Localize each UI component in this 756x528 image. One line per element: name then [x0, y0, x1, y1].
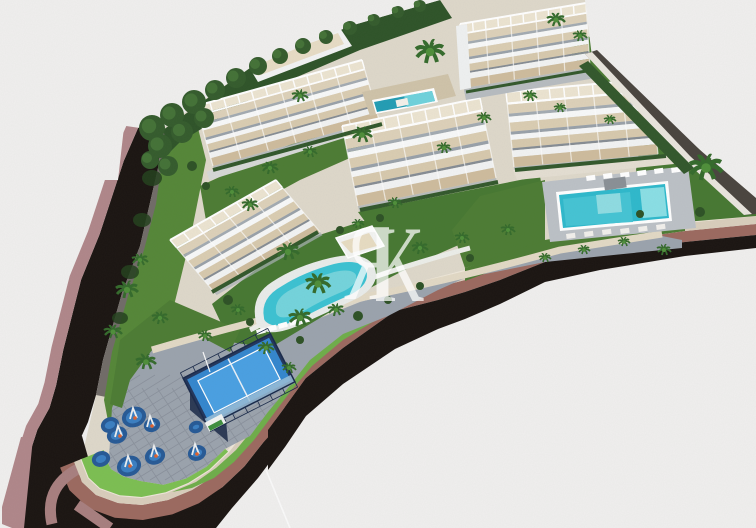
svg-text:K: K — [374, 203, 424, 324]
